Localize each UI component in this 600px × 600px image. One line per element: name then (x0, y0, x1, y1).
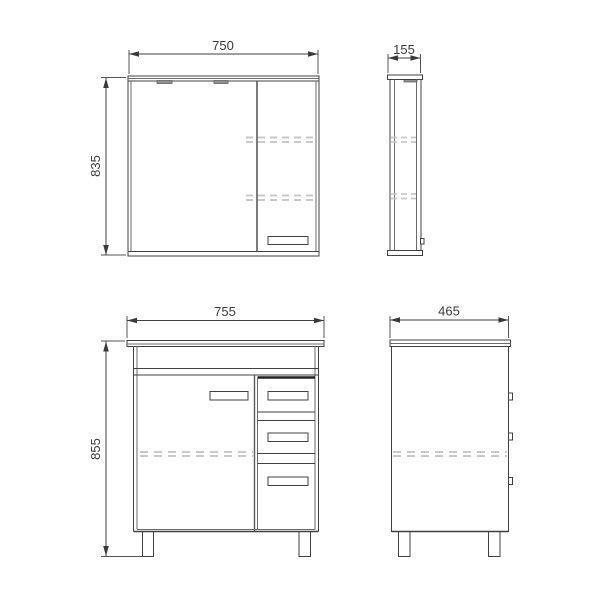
drawer3-handle (268, 477, 308, 486)
vanity-side-depth-label: 465 (438, 304, 460, 319)
vanity-side-knob-2 (509, 433, 513, 440)
vanity-front-height-label: 855 (88, 438, 103, 460)
mirror-front-width-label: 750 (212, 38, 234, 53)
drawer2-handle (268, 433, 308, 442)
mirror-side-top-cap (388, 75, 423, 80)
mirror-cabinet-front-view: 750 835 (88, 38, 319, 256)
vanity-door-handle (210, 392, 248, 401)
technical-drawing-canvas: 750 835 (0, 0, 600, 600)
mirror-light-fixture-right (214, 81, 228, 84)
mirror-cabinet-side-view: 155 (388, 42, 425, 256)
mirror-light-fixture-left (157, 81, 172, 84)
vanity-side-view: 465 (390, 304, 513, 557)
drawer1-handle (268, 392, 308, 401)
vanity-side-outline (392, 347, 509, 532)
mirror-door-handle (268, 237, 308, 245)
vanity-front-height-dimension: 855 (88, 341, 153, 557)
mirror-front-height-dimension: 835 (88, 78, 126, 256)
mirror-side-depth-label: 155 (393, 42, 415, 57)
mirror-cabinet-outline (128, 76, 319, 256)
vanity-side-knob-3 (509, 478, 513, 485)
vanity-front-width-label: 755 (214, 304, 236, 319)
vanity-front-width-dimension: 755 (127, 304, 324, 338)
vanity-front-right-leg (299, 532, 311, 557)
mirror-front-width-dimension: 750 (129, 38, 318, 74)
furniture-dimension-drawing: 750 835 (0, 0, 600, 600)
mirror-front-height-label: 835 (88, 155, 103, 177)
vanity-side-right-leg (489, 532, 501, 557)
vanity-front-view: 755 855 (88, 304, 324, 557)
mirror-side-depth-dimension: 155 (388, 42, 421, 73)
vanity-side-shelf-dashes (393, 452, 507, 456)
vanity-front-left-leg (143, 532, 154, 557)
mirror-side-bottom-cap (388, 251, 423, 256)
vanity-side-depth-dimension: 465 (390, 304, 509, 339)
mirror-side-knob (421, 239, 425, 245)
vanity-side-left-leg (399, 532, 411, 557)
vanity-door-shelf-dashes (140, 452, 253, 456)
vanity-side-knob-1 (509, 393, 513, 400)
